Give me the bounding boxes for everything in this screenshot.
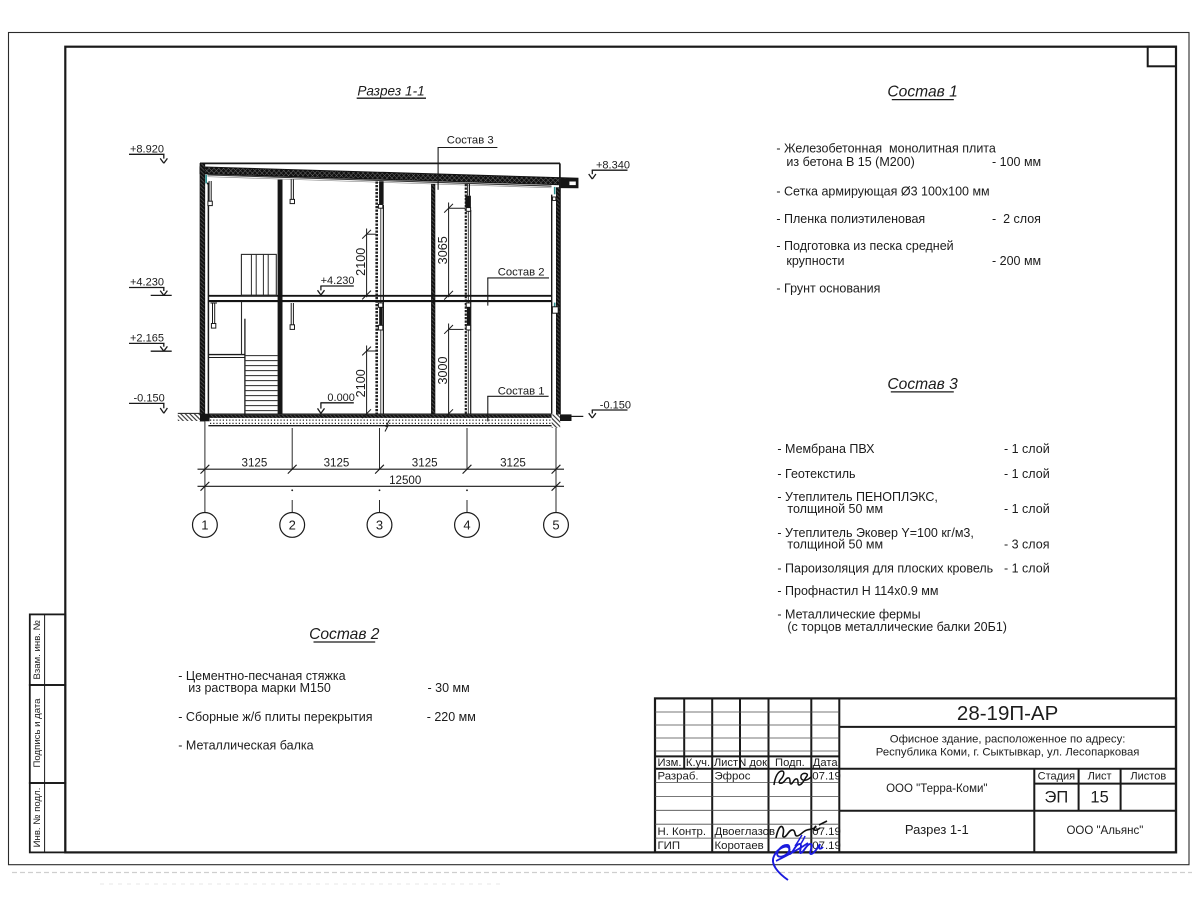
- svg-text:(с торцов металлические балки: (с торцов металлические балки 20Б1): [787, 620, 1007, 634]
- svg-text:3125: 3125: [412, 457, 438, 470]
- svg-text:- 2 слоя: - 2 слоя: [992, 212, 1041, 226]
- svg-text:Офисное здание, расположенное: Офисное здание, расположенное по адресу:: [890, 733, 1126, 745]
- svg-text:- 1 слой: - 1 слой: [1004, 442, 1050, 456]
- svg-text:Изм.: Изм.: [658, 757, 682, 769]
- svg-text:- Грунт основания: - Грунт основания: [776, 281, 880, 295]
- svg-text:+4.230: +4.230: [130, 277, 164, 289]
- svg-text:Состав 1: Состав 1: [887, 84, 957, 101]
- svg-text:N док.: N док.: [738, 757, 770, 769]
- svg-text:Состав 2: Состав 2: [498, 267, 545, 279]
- svg-text:5: 5: [552, 518, 559, 533]
- svg-text:1: 1: [201, 518, 208, 533]
- svg-text:Состав 1: Состав 1: [498, 385, 545, 397]
- svg-text:- Железобетонная монолитная п: - Железобетонная монолитная плита: [776, 142, 995, 156]
- svg-text:- 100 мм: - 100 мм: [992, 155, 1041, 169]
- svg-text:ГИП: ГИП: [658, 840, 681, 852]
- svg-text:Республика Коми, г. Сыктывкар,: Республика Коми, г. Сыктывкар, ул. Лесоп…: [876, 746, 1140, 758]
- svg-text:- Профнастил Н 114х0.9 мм: - Профнастил Н 114х0.9 мм: [777, 584, 938, 598]
- svg-text:- 1 слой: - 1 слой: [1004, 467, 1050, 481]
- svg-text:12500: 12500: [389, 474, 421, 487]
- svg-text:- 1 слой: - 1 слой: [1004, 561, 1050, 575]
- svg-text:Взам. инв. №: Взам. инв. №: [32, 620, 43, 679]
- svg-text:толщиной 50 мм: толщиной 50 мм: [787, 502, 883, 516]
- svg-text:+2.165: +2.165: [130, 333, 164, 345]
- svg-text:из раствора марки М150: из раствора марки М150: [188, 681, 331, 695]
- svg-text:ООО "Альянс": ООО "Альянс": [1066, 825, 1143, 837]
- svg-text:3000: 3000: [436, 356, 450, 384]
- svg-text:- Мембрана ПВХ: - Мембрана ПВХ: [777, 442, 875, 456]
- svg-text:3065: 3065: [436, 236, 450, 264]
- svg-text:3125: 3125: [324, 457, 350, 470]
- svg-text:2100: 2100: [354, 369, 368, 397]
- svg-text:- 1 слой: - 1 слой: [1004, 502, 1050, 516]
- svg-text:- Сетка армирующая Ø3 100х100: - Сетка армирующая Ø3 100х100 мм: [776, 185, 989, 199]
- svg-text:Н. Контр.: Н. Контр.: [658, 826, 707, 838]
- svg-text:28-19П-АР: 28-19П-АР: [957, 702, 1058, 725]
- svg-text:2100: 2100: [354, 248, 368, 276]
- svg-text:- 220 мм: - 220 мм: [427, 710, 476, 724]
- svg-text:- Сборные ж/б плиты перекрытия: - Сборные ж/б плиты перекрытия: [178, 710, 372, 724]
- svg-text:- Подготовка из песка средней: - Подготовка из песка средней: [776, 239, 953, 253]
- svg-text:+8.340: +8.340: [596, 159, 630, 171]
- svg-text:-0.150: -0.150: [134, 393, 165, 405]
- svg-text:-0.150: -0.150: [600, 399, 631, 411]
- svg-text:ООО "Терра-Коми": ООО "Терра-Коми": [886, 783, 987, 795]
- svg-text:Инв. № подл.: Инв. № подл.: [32, 788, 43, 848]
- svg-text:Коротаев: Коротаев: [715, 840, 764, 852]
- svg-text:3125: 3125: [242, 457, 268, 470]
- svg-text:3: 3: [376, 518, 383, 533]
- svg-text:- Геотекстиль: - Геотекстиль: [777, 467, 855, 481]
- svg-text:Состав 3: Состав 3: [887, 376, 958, 393]
- svg-text:+8.920: +8.920: [130, 143, 164, 155]
- svg-text:2: 2: [289, 518, 296, 533]
- svg-text:Разрез 1-1: Разрез 1-1: [357, 84, 424, 99]
- svg-text:Лист: Лист: [714, 757, 738, 769]
- svg-text:15: 15: [1090, 788, 1108, 806]
- svg-text:+4.230: +4.230: [321, 275, 355, 287]
- svg-text:4: 4: [463, 518, 470, 533]
- svg-text:Двоеглазов: Двоеглазов: [715, 826, 776, 838]
- svg-text:Подп.: Подп.: [775, 757, 805, 769]
- svg-text:Эфрос: Эфрос: [715, 770, 751, 782]
- svg-text:ЭП: ЭП: [1045, 788, 1069, 806]
- svg-text:К.уч.: К.уч.: [686, 757, 710, 769]
- svg-text:- 200 мм: - 200 мм: [992, 254, 1041, 268]
- svg-text:Состав 2: Состав 2: [309, 626, 380, 643]
- svg-text:из бетона В 15 (М200): из бетона В 15 (М200): [786, 155, 914, 169]
- svg-text:Разрез 1-1: Разрез 1-1: [905, 822, 969, 837]
- svg-text:Состав 3: Состав 3: [447, 135, 494, 147]
- svg-text:Лист: Лист: [1088, 771, 1112, 783]
- svg-text:Дата: Дата: [813, 757, 839, 769]
- svg-text:07.19: 07.19: [812, 770, 841, 782]
- svg-text:крупности: крупности: [786, 254, 844, 268]
- svg-text:- Металлическая балка: - Металлическая балка: [178, 739, 313, 753]
- svg-text:Подпись и дата: Подпись и дата: [32, 698, 43, 768]
- svg-text:Разраб.: Разраб.: [658, 770, 699, 782]
- svg-text:- 3 слоя: - 3 слоя: [1004, 538, 1049, 552]
- svg-text:3125: 3125: [500, 457, 526, 470]
- svg-text:Стадия: Стадия: [1038, 771, 1076, 783]
- svg-text:- 30 мм: - 30 мм: [428, 681, 470, 695]
- svg-text:- Пленка полиэтиленовая: - Пленка полиэтиленовая: [776, 212, 925, 226]
- svg-text:0.000: 0.000: [327, 392, 355, 404]
- svg-text:Листов: Листов: [1130, 771, 1166, 783]
- svg-text:07.19: 07.19: [812, 826, 841, 838]
- svg-text:- Пароизоляция для плоских кро: - Пароизоляция для плоских кровель: [777, 561, 993, 575]
- svg-text:толщиной 50 мм: толщиной 50 мм: [787, 538, 883, 552]
